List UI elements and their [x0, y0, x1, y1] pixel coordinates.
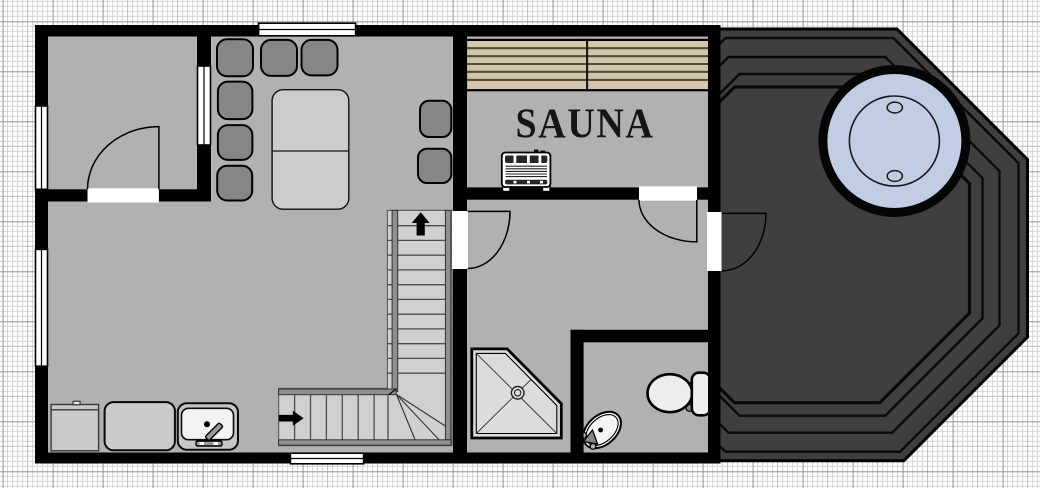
svg-text:SAUNA: SAUNA	[516, 100, 655, 147]
